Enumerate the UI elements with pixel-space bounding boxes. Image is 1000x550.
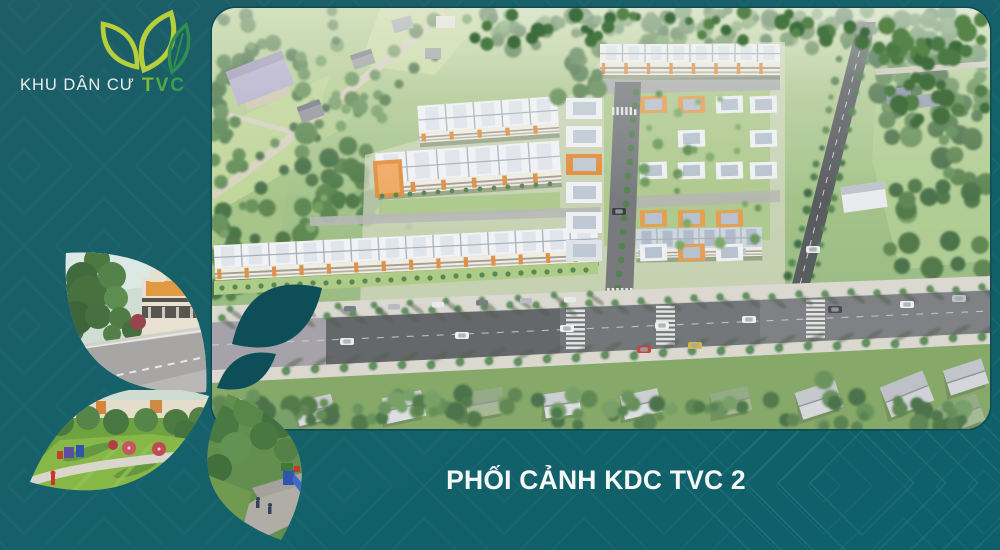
svg-text:KHU DÂN CƯ: KHU DÂN CƯ xyxy=(20,75,135,94)
svg-text:PHỐI CẢNH KDC TVC 2: PHỐI CẢNH KDC TVC 2 xyxy=(446,465,746,495)
svg-text:TVC: TVC xyxy=(142,75,186,96)
